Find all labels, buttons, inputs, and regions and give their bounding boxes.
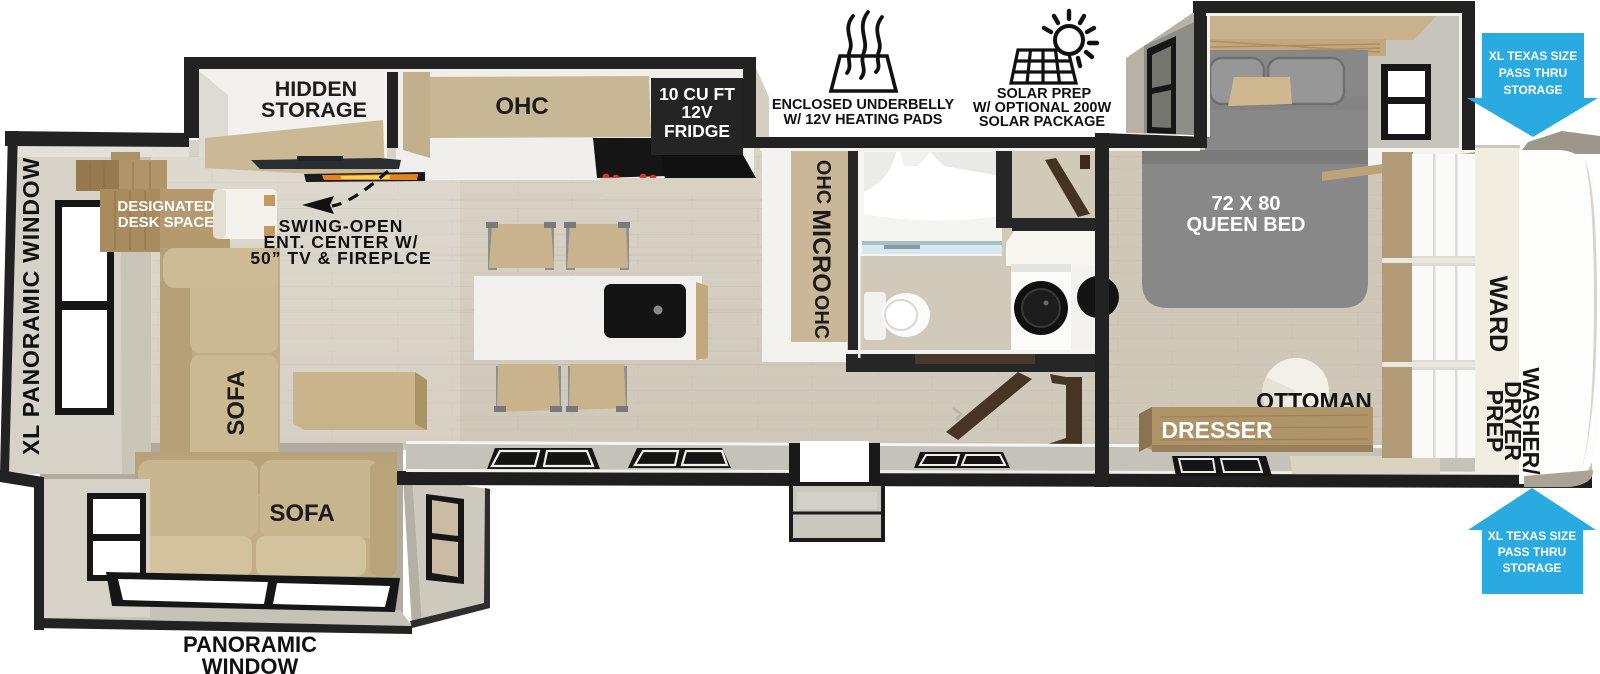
svg-text:SOLAR PACKAGE: SOLAR PACKAGE [979,114,1106,130]
svg-text:PASS THRU: PASS THRU [1498,545,1566,559]
svg-text:OHC: OHC [812,160,834,204]
svg-text:DRESSER: DRESSER [1161,417,1273,443]
svg-text:XL TEXAS SIZE: XL TEXAS SIZE [1489,49,1577,63]
svg-text:STORAGE: STORAGE [261,98,367,122]
svg-text:12V: 12V [681,102,712,122]
svg-text:DESIGNATED: DESIGNATED [117,198,214,215]
svg-text:PASS THRU: PASS THRU [1499,66,1567,80]
svg-text:PREP: PREP [1482,390,1508,453]
svg-text:72 X 80: 72 X 80 [1212,193,1281,215]
svg-text:50” TV & FIREPLCE: 50” TV & FIREPLCE [250,248,431,268]
svg-text:OHC: OHC [495,93,548,120]
svg-text:OHC: OHC [810,295,832,339]
svg-text:QUEEN BED: QUEEN BED [1187,214,1306,236]
svg-text:STORAGE: STORAGE [1503,83,1562,97]
svg-text:ENCLOSED UNDERBELLY: ENCLOSED UNDERBELLY [772,97,955,113]
svg-text:SOFA: SOFA [269,500,334,527]
svg-text:WARD: WARD [1484,276,1512,352]
svg-text:XL TEXAS SIZE: XL TEXAS SIZE [1488,529,1576,543]
svg-text:SOFA: SOFA [223,370,250,435]
svg-text:WINDOW: WINDOW [202,654,299,674]
svg-text:FRIDGE: FRIDGE [664,121,730,141]
svg-text:10 CU FT: 10 CU FT [659,84,735,104]
svg-text:XL PANORAMIC WINDOW: XL PANORAMIC WINDOW [18,157,44,455]
svg-text:STORAGE: STORAGE [1502,561,1561,575]
svg-text:DESK SPACE: DESK SPACE [118,214,214,231]
svg-text:W/ 12V HEATING PADS: W/ 12V HEATING PADS [784,112,943,128]
svg-text:MICRO: MICRO [807,209,835,292]
